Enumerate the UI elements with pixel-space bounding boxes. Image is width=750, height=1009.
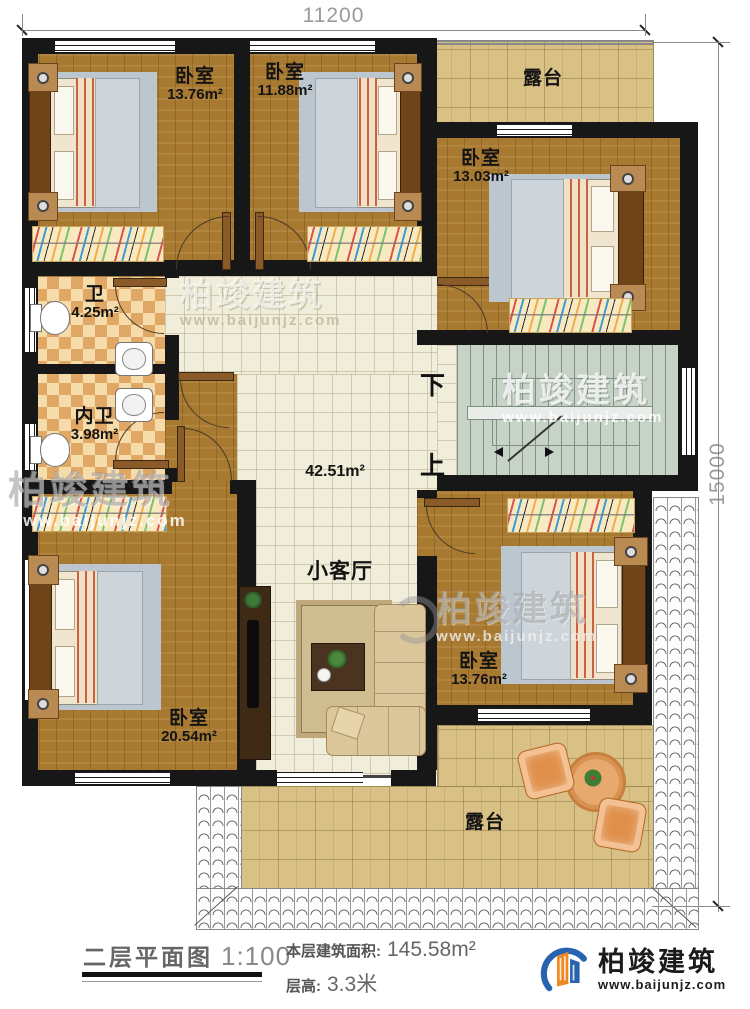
- window: [681, 368, 695, 455]
- roof-strip-right: [653, 497, 699, 890]
- wardrobe: [32, 496, 167, 532]
- watermark-logo-icon: [392, 596, 440, 644]
- stair-down-label: 下: [420, 366, 445, 402]
- nightstand: [28, 192, 58, 221]
- floor-hall-upper: [165, 276, 437, 374]
- bed: [498, 540, 648, 690]
- room-label-bedroom-right: 卧室 13.03m²: [435, 148, 527, 186]
- window: [497, 124, 572, 136]
- nightstand: [615, 664, 649, 693]
- extension-line: [652, 906, 730, 907]
- extension-line: [652, 42, 730, 43]
- wall-segment: [236, 770, 277, 786]
- brand-website: www.baijunjz.com: [598, 977, 726, 992]
- wall-segment: [22, 480, 172, 494]
- room-label-living: 小客厅: [285, 560, 395, 584]
- stair-arrow-left-icon: [494, 447, 503, 457]
- nightstand: [610, 165, 646, 192]
- stair-up-label: 上: [420, 446, 445, 482]
- nightstand: [615, 537, 649, 566]
- plant: [581, 766, 605, 790]
- wall-segment: [680, 122, 698, 345]
- plan-scale: 1:100: [221, 941, 291, 972]
- title-underline-thick: [82, 972, 262, 977]
- room-label-bedroom-bottom-left: 卧室 20.54m²: [148, 708, 230, 746]
- window: [250, 40, 375, 52]
- nightstand: [394, 192, 422, 221]
- roof-strip-bottom: [196, 888, 699, 930]
- window: [55, 40, 175, 52]
- room-label-terrace-top: 露台: [498, 68, 588, 89]
- wardrobe: [32, 226, 164, 262]
- floor-area-row: 本层建筑面积: 145.58m²: [286, 938, 476, 962]
- extension-line: [645, 14, 646, 36]
- room-label-bedroom-top-mid: 卧室 11.88m²: [240, 62, 330, 100]
- window: [75, 772, 170, 784]
- title-underline-thin: [82, 981, 262, 982]
- wardrobe: [509, 298, 632, 333]
- tv: [247, 620, 259, 708]
- nightstand: [394, 63, 422, 92]
- wall-segment: [437, 475, 698, 491]
- wardrobe: [307, 226, 422, 262]
- extension-line: [22, 14, 23, 36]
- room-label-bath: 卫 4.25m²: [55, 284, 135, 322]
- brand-logo: 柏竣建筑 www.baijunjz.com: [538, 944, 726, 996]
- wall-segment: [165, 335, 179, 420]
- floor-plan: 卧室 13.76m² 卧室 11.88m² 露台 卧室 13.03m² 卫 4.…: [0, 0, 750, 1009]
- room-label-bedroom-bottom-right: 卧室 13.76m²: [438, 651, 520, 689]
- bed: [28, 558, 164, 716]
- sink: [115, 342, 153, 376]
- stair-arrow-right-icon: [545, 447, 554, 457]
- wall-segment: [417, 490, 437, 498]
- wall-segment: [391, 770, 436, 786]
- bed: [486, 168, 646, 308]
- plan-title: 二层平面图 1:100: [83, 938, 291, 972]
- wardrobe: [507, 498, 635, 533]
- sliding-door: [363, 775, 391, 778]
- wall-segment: [417, 333, 437, 345]
- dimension-line-top: [22, 30, 645, 31]
- brand-name: 柏竣建筑: [598, 948, 726, 978]
- plant: [327, 650, 347, 668]
- room-label-terrace-bottom: 露台: [443, 812, 527, 833]
- window: [277, 772, 363, 784]
- plant: [244, 592, 262, 608]
- window: [478, 708, 590, 721]
- roof-strip-left: [196, 786, 242, 890]
- room-label-hall-area: 42.51m²: [290, 463, 380, 481]
- dimension-width: 11200: [22, 4, 645, 28]
- room-label-bedroom-top-left: 卧室 13.76m²: [140, 66, 250, 104]
- brand-logo-icon: [538, 944, 590, 996]
- nightstand: [28, 63, 58, 92]
- floor-height-row: 层高: 3.3米: [286, 968, 377, 998]
- nightstand: [28, 555, 59, 585]
- nightstand: [28, 689, 59, 719]
- patio-chair: [592, 796, 648, 854]
- plate: [317, 668, 331, 682]
- dimension-line-right: [718, 42, 719, 912]
- room-label-inner-bath: 内卫 3.98m²: [52, 406, 137, 444]
- door-leaf: [113, 460, 169, 469]
